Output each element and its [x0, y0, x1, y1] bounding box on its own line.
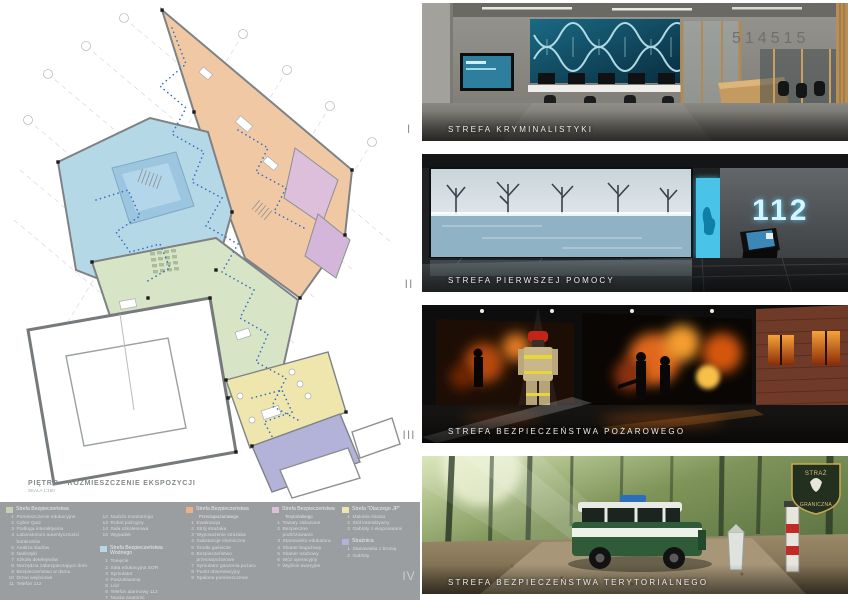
render-first-aid-zone: 112 112 STREFA PIERWSZEJ POMOCY: [422, 154, 848, 292]
legend-column-4: Strefa Bezpieczeństwa Terytorialnego 1To…: [272, 507, 338, 597]
legend-item-label: Telefon 112: [17, 582, 97, 588]
zone-items-safety-cont: 12Nadzór monitoringu13Robot policyjny14S…: [100, 515, 184, 540]
presentation-board: PIĘTRO - ROZMIESZCZENIE EKSPOZYCJI SKALA…: [0, 0, 848, 600]
light-bar: [620, 495, 646, 502]
zone-swatch-territorial: [272, 507, 279, 513]
legend-item-label: Gabloty z eksponatami: [353, 527, 417, 533]
render-caption: STREFA BEZPIECZEŃSTWA TERYTORIALNEGO: [448, 578, 708, 587]
legend-item-number: 2: [342, 554, 350, 560]
legend-item-label: Wyjście awaryjne: [283, 564, 339, 570]
svg-text:STRAŻ: STRAŻ: [805, 470, 827, 477]
zone-swatch-safety: [6, 507, 13, 513]
legend-item-label: Bezpieczne podróżowanie: [283, 527, 339, 539]
legend-item-label: Spalone pomieszczenie: [197, 576, 271, 582]
render-caption: STREFA PIERWSZEJ POMOCY: [448, 276, 615, 285]
zone-swatch-fire: [186, 507, 193, 513]
legend-column-1: Strefa Bezpieczeństwa 1Pomieszczenie edu…: [6, 507, 96, 597]
legend-item: 9Spalone pomieszczenie: [186, 576, 270, 582]
zone-title-fire: Strefa Bezpieczeństwa: [196, 507, 249, 513]
zone-swatch-why: [342, 507, 349, 513]
zone-title2-territorial: Terytorialnego: [272, 514, 338, 519]
legend-item-number: 11: [6, 582, 14, 588]
legend-item-label: Nauka anatomii: [111, 596, 185, 602]
legend-item-label: Wypadek: [111, 533, 185, 539]
legend-item-number: 15: [100, 533, 108, 539]
legend-item-number: 9: [186, 576, 194, 582]
zone-swatch-water: [100, 546, 107, 552]
legend-item: 7Nauka anatomii: [100, 596, 184, 602]
zone-items-territorial: 1Towary zakazane2Bezpieczne podróżowanie…: [272, 521, 338, 570]
wall-tv-screen: [460, 53, 514, 91]
border-guard-badge: STRAŻ GRANICZNA: [792, 464, 840, 514]
wall-number: 514515: [732, 30, 809, 47]
render-caption: STREFA BEZPIECZEŃSTWA POŻAROWEGO: [448, 427, 685, 436]
legend-item-label: Bezpieczeństwo przeciwpożarowe: [197, 552, 271, 564]
legend-item: 6Bezpieczeństwo przeciwpożarowe: [186, 552, 270, 564]
legend-item-label: Laboratorium autentyczności banknotów: [17, 533, 97, 545]
legend-item-label: Gabloty: [353, 554, 417, 560]
backlit-panorama: [430, 168, 692, 258]
svg-text:112: 112: [752, 194, 809, 227]
svg-text:GRANICZNA: GRANICZNA: [800, 502, 833, 508]
render-fire-zone: STREFA BEZPIECZEŃSTWA POŻAROWEGO: [422, 305, 848, 443]
render-numeral-1: I: [400, 122, 418, 136]
zone-title-watchtower: Strażnica: [352, 539, 374, 545]
legend-panel: Strefa Bezpieczeństwa 1Pomieszczenie edu…: [0, 502, 420, 600]
zone-items-fire: 1Ewakuacja2Strój strażaka3Wyposażenie st…: [186, 521, 270, 582]
legend-item: 2Gabloty: [342, 554, 416, 560]
neon-112-sign: 112 112: [752, 194, 809, 227]
legend-item-number: 6: [186, 552, 194, 564]
zone-swatch-watchtower: [342, 539, 349, 545]
render-numeral-2: II: [400, 277, 418, 291]
zone-title-why: Strefa "Dlaczego JP": [352, 507, 400, 513]
legend-item: 7Wyjście awaryjne: [272, 564, 338, 570]
meeting-room: [760, 49, 848, 107]
west-wing-rooms: [28, 298, 400, 498]
legend-item-number: 3: [342, 527, 350, 533]
zone-title2-fire: Przeciwpożarowego: [186, 514, 270, 519]
zone-title-water: Strefa Bezpieczeństwa Wodnego: [110, 546, 184, 558]
legend-column-3: Strefa Bezpieczeństwa Przeciwpożarowego …: [186, 507, 270, 597]
ceiling: [422, 154, 848, 168]
legend-item-number: 2: [272, 527, 280, 539]
zone-items-water: 1Tonięcie2Sala edukacyjna SOR3Symulator4…: [100, 559, 184, 602]
legend-item: 4Laboratorium autentyczności banknotów: [6, 533, 96, 545]
render-territorial-zone: STRAŻ GRANICZNA STREFA BEZPIECZEŃSTWA TE…: [422, 456, 848, 594]
render-numeral-4: IV: [400, 569, 418, 583]
wood-slat-wall: [836, 3, 848, 119]
zone-items-why: 1Makieta miasta2Stół interaktywny3Gablot…: [342, 515, 416, 533]
render-forensics-zone: 514515: [422, 3, 848, 141]
render-numeral-3: III: [400, 428, 418, 442]
hand-panel: [696, 178, 720, 258]
legend-column-5: Strefa "Dlaczego JP" 1Makieta miasta2Stó…: [342, 507, 416, 597]
zone-items-watchtower: 1Stanowiska z bronią2Gabloty: [342, 547, 416, 559]
floor-plan: PIĘTRO - ROZMIESZCZENIE EKSPOZYCJI SKALA…: [0, 0, 420, 500]
legend-item: 15Wypadek: [100, 533, 184, 539]
zone-title-territorial: Strefa Bezpieczeństwa: [282, 507, 335, 513]
plan-title-block: PIĘTRO - ROZMIESZCZENIE EKSPOZYCJI SKALA…: [28, 480, 196, 493]
legend-item-number: 7: [100, 596, 108, 602]
plan-title: PIĘTRO - ROZMIESZCZENIE EKSPOZYCJI: [28, 480, 196, 487]
legend-item: 11Telefon 112: [6, 582, 96, 588]
legend-item: 2Bezpieczne podróżowanie: [272, 527, 338, 539]
zone-title-safety: Strefa Bezpieczeństwa: [16, 507, 69, 513]
border-post: [784, 501, 801, 572]
fire-mural-center: [582, 313, 752, 407]
legend-item-number: 4: [6, 533, 14, 545]
plan-scale: SKALA 1:150: [28, 488, 196, 493]
legend-item-number: 7: [272, 564, 280, 570]
zone-items-safety: 1Pomieszczenie edukacyjne2Cyber Quiz3Pod…: [6, 515, 96, 589]
legend-item: 3Gabloty z eksponatami: [342, 527, 416, 533]
floor-plan-drawing: [0, 0, 420, 500]
legend-column-2: 12Nadzór monitoringu13Robot policyjny14S…: [100, 507, 184, 597]
render-caption: STREFA KRYMINALISTYKI: [448, 125, 593, 134]
brick-wall: [756, 305, 848, 417]
ceiling: [422, 3, 848, 17]
